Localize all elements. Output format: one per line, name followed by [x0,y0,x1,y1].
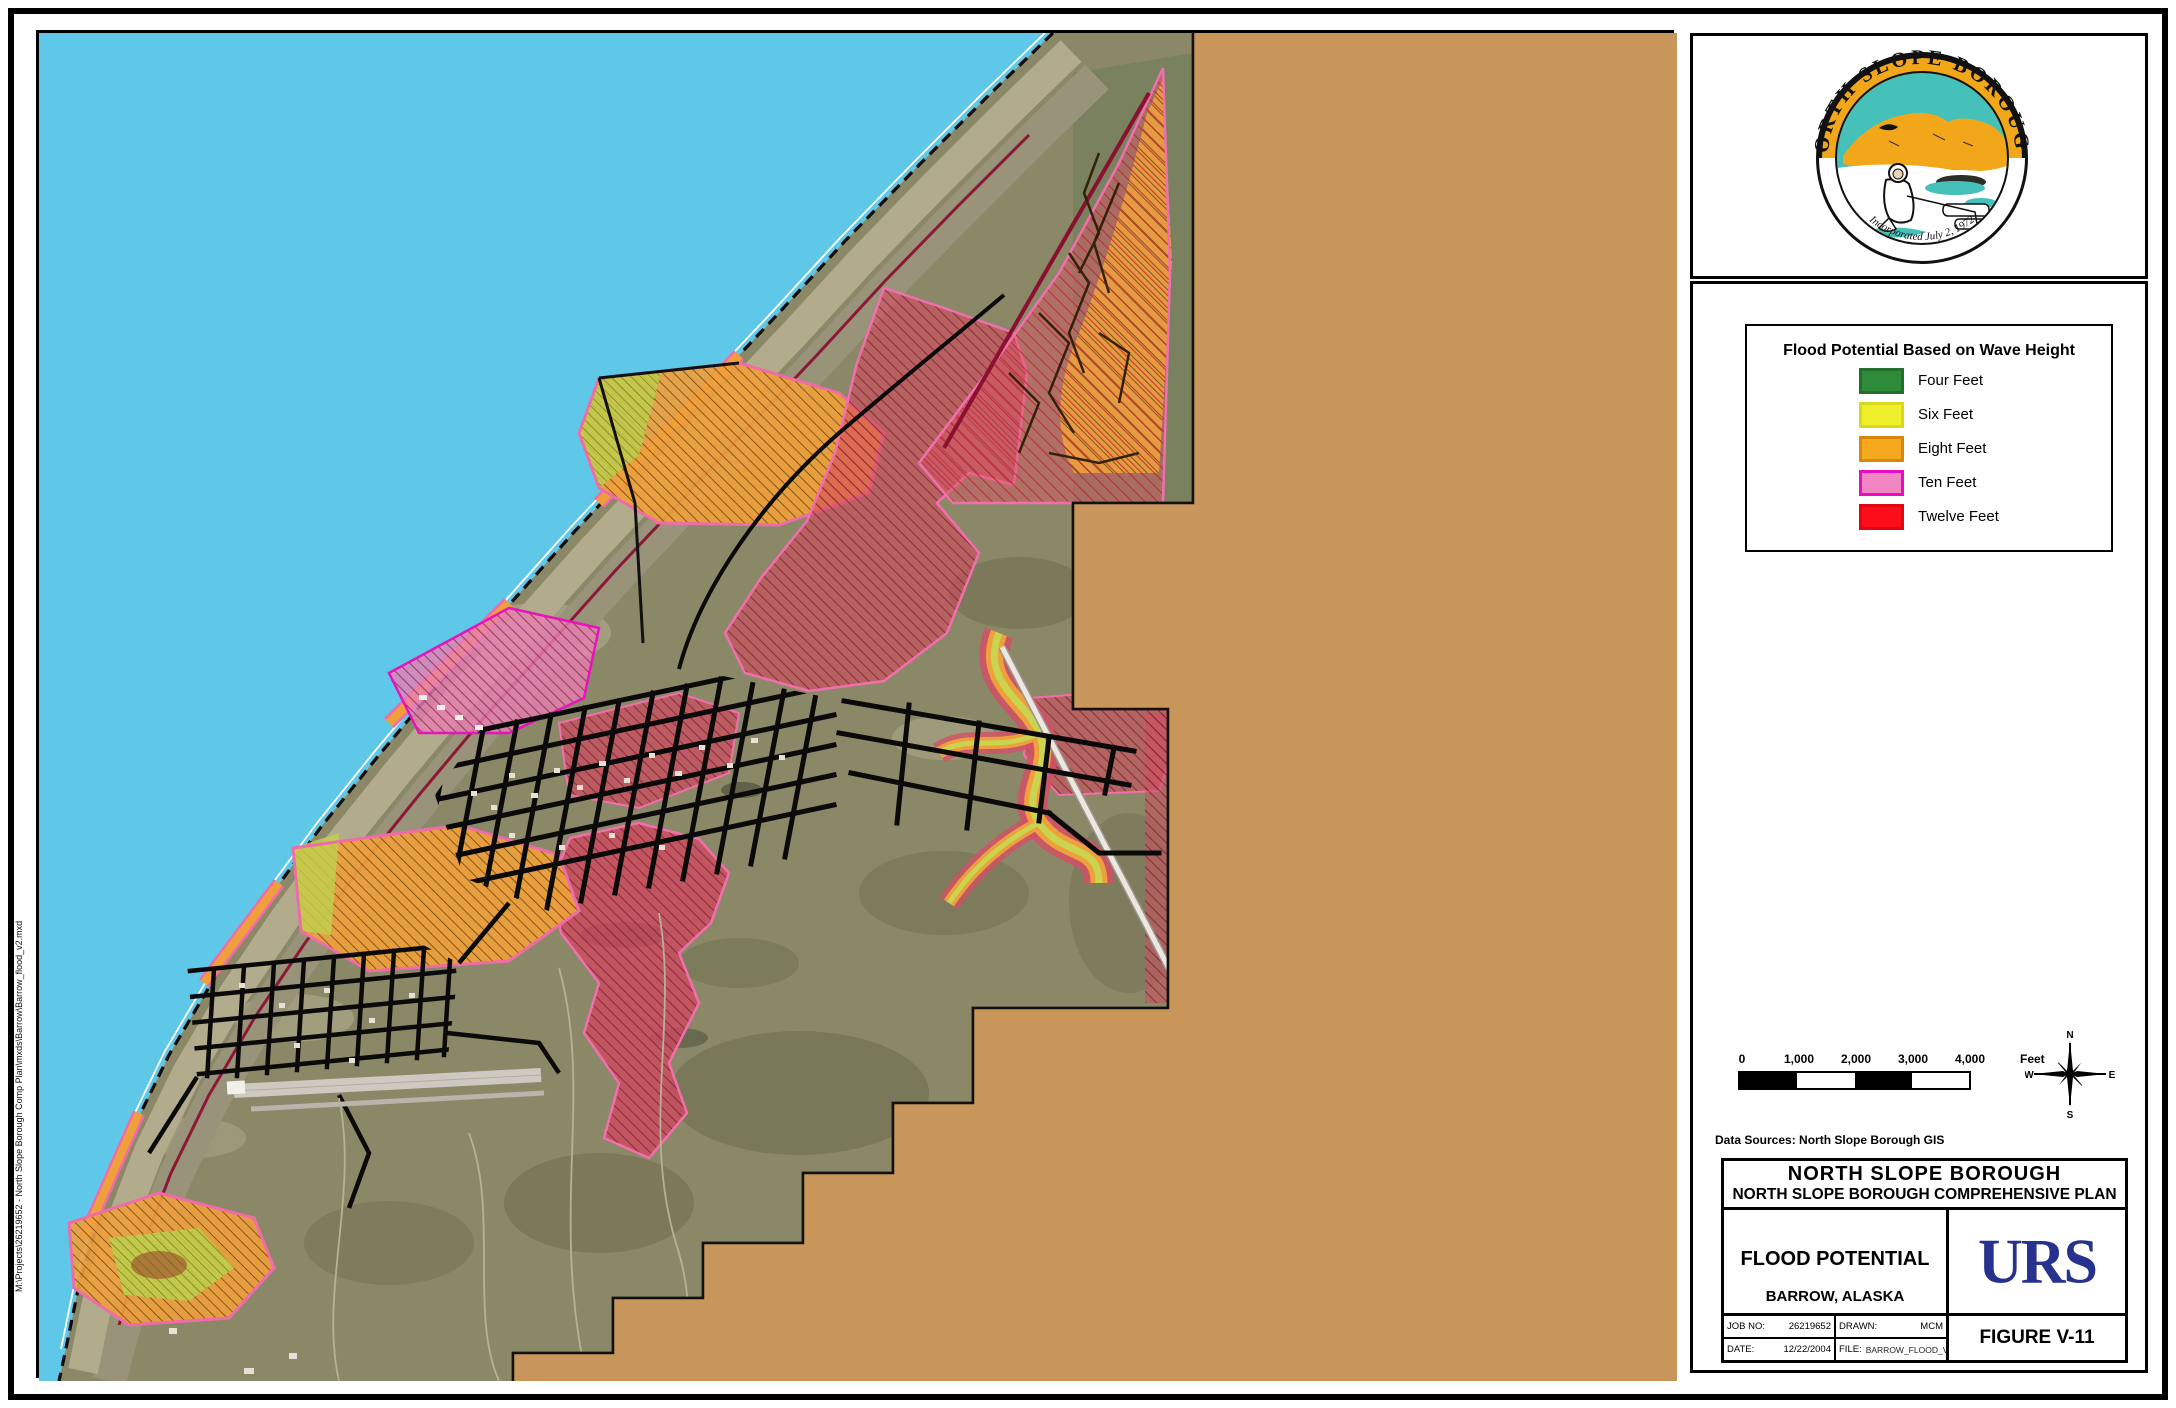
legend-item-label: Eight Feet [1918,440,1986,457]
legend-item-label: Twelve Feet [1918,508,1999,525]
legend-title: Flood Potential Based on Wave Height [1755,342,2103,360]
legend-item-label: Four Feet [1918,372,1983,389]
legend-item-ten-feet: Ten Feet [1859,469,2111,496]
legend-swatch-1 [1859,402,1904,428]
north-slope-borough-seal: NORTH SLOPE BOROUGH Incorporated July 2,… [1693,36,2145,276]
urs-logo: URS [1978,1230,2096,1293]
file-path-note: M:\Projects\26219652 - North Slope Borou… [14,962,24,1292]
legend: Flood Potential Based on Wave Height Fou… [1745,324,2113,552]
title-block: NORTH SLOPE BOROUGH NORTH SLOPE BOROUGH … [1721,1158,2128,1363]
map-panel [36,30,1674,1378]
map-title: FLOOD POTENTIAL [1724,1248,1946,1271]
job-no-value: 26219652 [1765,1321,1831,1332]
legend-swatch-0 [1859,368,1904,394]
borough-title: NORTH SLOPE BOROUGH [1724,1163,2125,1186]
legend-item-four-feet: Four Feet [1859,367,2111,394]
date-cell: DATE: 12/22/2004 [1724,1339,1836,1360]
legend-item-label: Ten Feet [1918,474,1976,491]
file-value: BARROW_FLOOD_V2.MXD [1862,1345,1946,1355]
title-block-fields: JOB NO: 26219652 DRAWN: MCM DATE: 12/22/… [1724,1316,1949,1360]
flood-map-graphic [39,33,1677,1381]
scale-tick-labels: 0 1,000 2,000 3,000 4,000 Feet [1738,1052,2038,1068]
legend-item-six-feet: Six Feet [1859,401,2111,428]
scale-tick: 0 [1739,1052,1746,1066]
job-no-label: JOB NO: [1727,1321,1765,1332]
file-label: FILE: [1839,1344,1862,1355]
compass-rose: N S W E [2025,1029,2115,1119]
file-cell: FILE: BARROW_FLOOD_V2.MXD [1836,1339,1946,1360]
figure-number: FIGURE V-11 [1949,1316,2125,1360]
scale-tick: 2,000 [1841,1052,1871,1066]
scale-tick: 3,000 [1898,1052,1928,1066]
map-subtitle-city: BARROW, ALASKA [1724,1288,1946,1305]
job-no-cell: JOB NO: 26219652 [1724,1316,1836,1337]
map-surround-panel: Flood Potential Based on Wave Height Fou… [1690,281,2148,1373]
date-value: 12/22/2004 [1754,1344,1831,1355]
compass-w: W [2025,1070,2034,1081]
drawn-cell: DRAWN: MCM [1836,1316,1946,1337]
scale-tick: 4,000 [1955,1052,1985,1066]
drawn-value: MCM [1877,1321,1943,1332]
legend-swatch-4 [1859,504,1904,530]
compass-e: E [2109,1070,2115,1081]
legend-item-label: Six Feet [1918,406,1973,423]
data-sources-note: Data Sources: North Slope Borough GIS [1715,1133,1944,1147]
drawn-label: DRAWN: [1839,1321,1877,1332]
date-label: DATE: [1727,1344,1754,1355]
scale-tick: 1,000 [1784,1052,1814,1066]
scale-bar-strip [1738,1071,1971,1090]
scale-bar: 0 1,000 2,000 3,000 4,000 Feet [1738,1052,2038,1092]
legend-item-twelve-feet: Twelve Feet [1859,503,2111,530]
map-title-cell: FLOOD POTENTIAL BARROW, ALASKA [1724,1210,1949,1313]
map-figure-page: M:\Projects\26219652 - North Slope Borou… [0,0,2176,1408]
borough-seal-box: NORTH SLOPE BOROUGH Incorporated July 2,… [1690,33,2148,279]
compass-s: S [2067,1110,2074,1119]
compass-n: N [2066,1030,2073,1041]
legend-swatch-3 [1859,470,1904,496]
title-block-header: NORTH SLOPE BOROUGH NORTH SLOPE BOROUGH … [1724,1161,2125,1210]
legend-swatch-2 [1859,436,1904,462]
legend-item-eight-feet: Eight Feet [1859,435,2111,462]
company-logo-cell: URS [1949,1210,2125,1313]
plan-title: NORTH SLOPE BOROUGH COMPREHENSIVE PLAN [1724,1186,2125,1204]
